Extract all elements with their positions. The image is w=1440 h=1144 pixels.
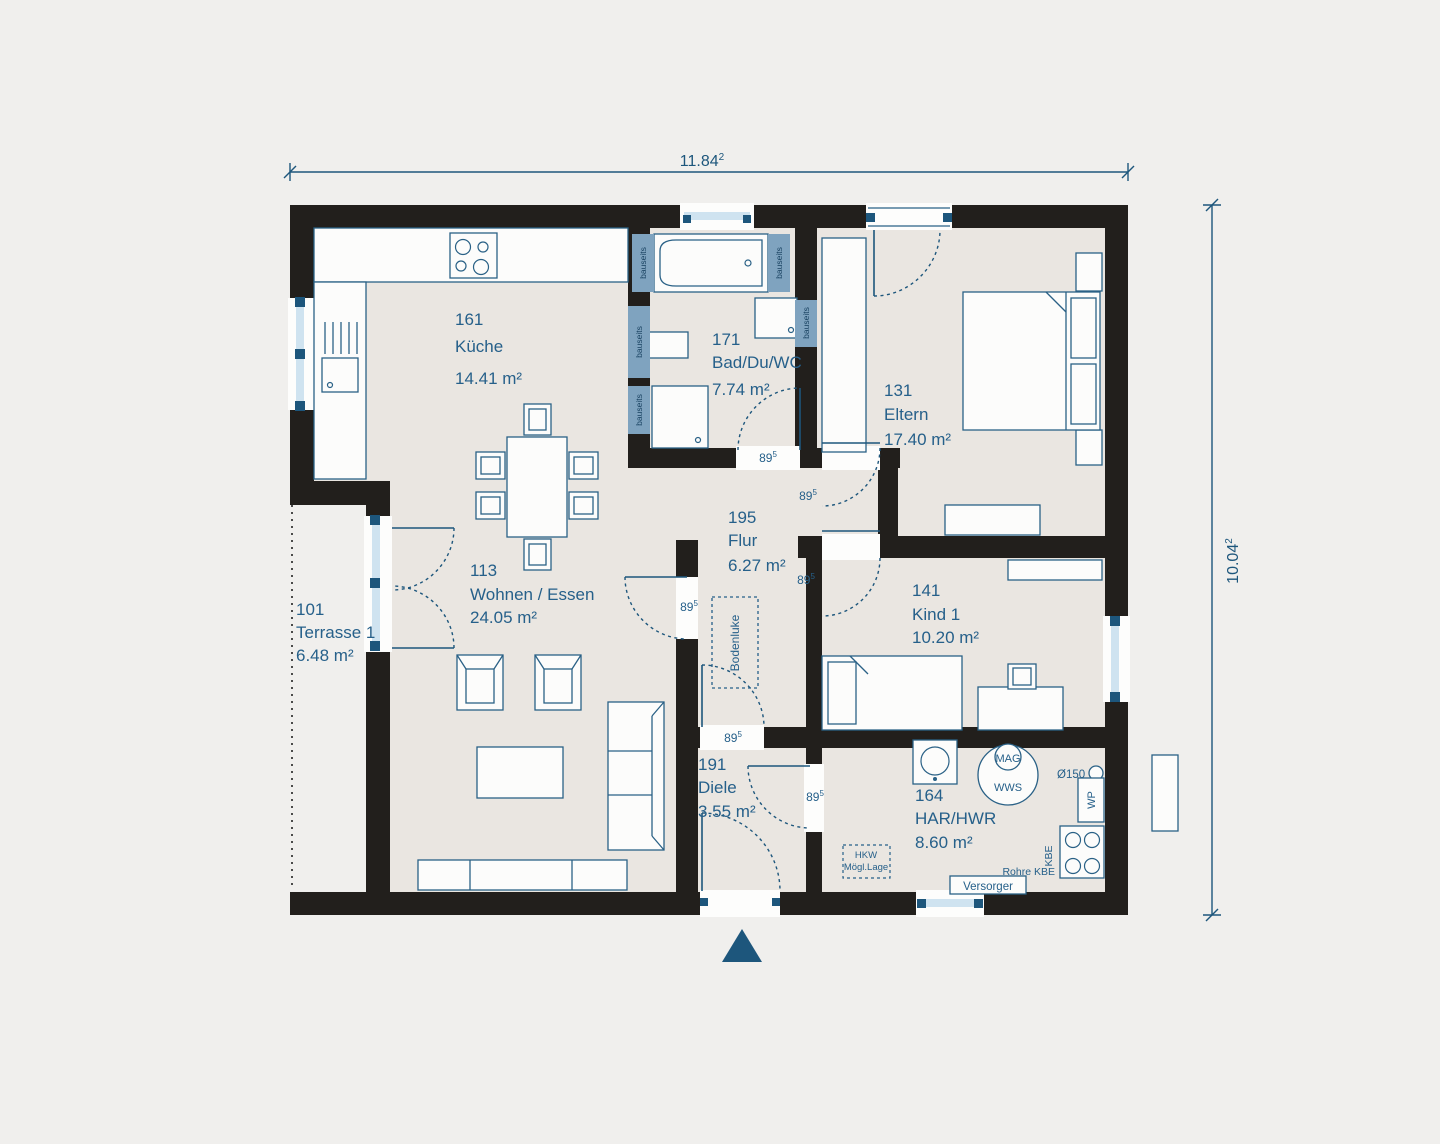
- dresser-icon: [945, 505, 1040, 535]
- washing-machine-icon: [913, 740, 957, 784]
- washbasin-icon: [648, 332, 688, 358]
- bathtub-icon: [654, 234, 768, 292]
- wp-label: WP: [1086, 791, 1098, 809]
- chair-icon: [1008, 664, 1036, 689]
- bauseits-label: bauseits: [801, 307, 811, 339]
- diameter-label: Ø150: [1057, 769, 1085, 781]
- svg-text:6.27 m²: 6.27 m²: [728, 556, 786, 575]
- svg-text:10.20 m²: 10.20 m²: [912, 628, 979, 647]
- svg-text:171: 171: [712, 330, 740, 349]
- floor-plan-drawing: bauseits bauseits bauseits bauseits baus…: [0, 0, 1440, 1144]
- nightstand-icon: [1076, 430, 1102, 465]
- svg-text:161: 161: [455, 310, 483, 329]
- sofa-icon: [608, 702, 664, 850]
- svg-text:195: 195: [728, 508, 756, 527]
- svg-text:164: 164: [915, 786, 943, 805]
- hkw-label-line2: Mögl.Lage: [844, 862, 888, 873]
- desk-icon: [978, 687, 1063, 730]
- shower-icon: [652, 386, 708, 448]
- width-dimension-label: 11.842: [680, 152, 725, 170]
- bauseits-label: bauseits: [634, 394, 644, 426]
- dimension-top: 11.842: [284, 152, 1134, 181]
- single-bed-icon: [822, 656, 962, 730]
- svg-text:Bad/Du/WC: Bad/Du/WC: [712, 353, 802, 372]
- wws-label: WWS: [994, 782, 1022, 794]
- svg-text:HAR/HWR: HAR/HWR: [915, 809, 996, 828]
- svg-text:6.48 m²: 6.48 m²: [296, 646, 354, 665]
- svg-text:131: 131: [884, 381, 912, 400]
- entrance-arrow-icon: [722, 929, 762, 962]
- svg-text:7.74 m²: 7.74 m²: [712, 380, 770, 399]
- outdoor-unit-icon: [1152, 755, 1178, 831]
- svg-text:Küche: Küche: [455, 337, 503, 356]
- kbe-box-icon: [1060, 826, 1104, 878]
- armchair-icon: [535, 655, 581, 710]
- svg-text:Flur: Flur: [728, 531, 758, 550]
- bauseits-label: bauseits: [774, 247, 784, 279]
- coffee-table-icon: [477, 747, 563, 798]
- svg-text:Wohnen / Essen: Wohnen / Essen: [470, 585, 594, 604]
- window-kind: [1103, 616, 1130, 702]
- svg-text:141: 141: [912, 581, 940, 600]
- floor-plan: bauseits bauseits bauseits bauseits baus…: [0, 0, 1440, 1144]
- svg-text:Diele: Diele: [698, 778, 737, 797]
- svg-text:14.41 m²: 14.41 m²: [455, 369, 522, 388]
- svg-text:101: 101: [296, 600, 324, 619]
- bauseits-label: bauseits: [638, 247, 648, 279]
- armchair-icon: [457, 655, 503, 710]
- rohre-kbe-label: Rohre KBE: [1002, 866, 1055, 878]
- shelf-icon: [1008, 560, 1102, 580]
- stove-icon: [450, 233, 497, 278]
- svg-text:113: 113: [470, 561, 497, 580]
- svg-text:24.05 m²: 24.05 m²: [470, 608, 537, 627]
- toilet-icon: [755, 298, 797, 338]
- mag-label: MAG: [995, 753, 1020, 765]
- dimension-right: 10.042: [1203, 199, 1242, 921]
- kbe-label: KBE: [1043, 845, 1055, 866]
- svg-text:Eltern: Eltern: [884, 405, 928, 424]
- svg-text:3.55 m²: 3.55 m²: [698, 802, 756, 821]
- hkw-label-line1: HKW: [855, 850, 877, 861]
- bauseits-label: bauseits: [634, 326, 644, 358]
- svg-text:191: 191: [698, 755, 726, 774]
- height-dimension-label: 10.042: [1224, 538, 1242, 584]
- svg-text:Kind 1: Kind 1: [912, 605, 960, 624]
- bodenluke-label: Bodenluke: [728, 614, 742, 671]
- window-bath: [680, 203, 754, 230]
- versorger-label: Versorger: [963, 881, 1013, 893]
- svg-text:8.60 m²: 8.60 m²: [915, 833, 973, 852]
- window-eltern: [866, 203, 952, 230]
- wardrobe-icon: [822, 238, 866, 452]
- sideboard-icon: [418, 860, 627, 890]
- svg-text:Terrasse 1: Terrasse 1: [296, 623, 375, 642]
- svg-text:17.40 m²: 17.40 m²: [884, 430, 951, 449]
- nightstand-icon: [1076, 253, 1102, 291]
- window-kitchen: [288, 297, 316, 411]
